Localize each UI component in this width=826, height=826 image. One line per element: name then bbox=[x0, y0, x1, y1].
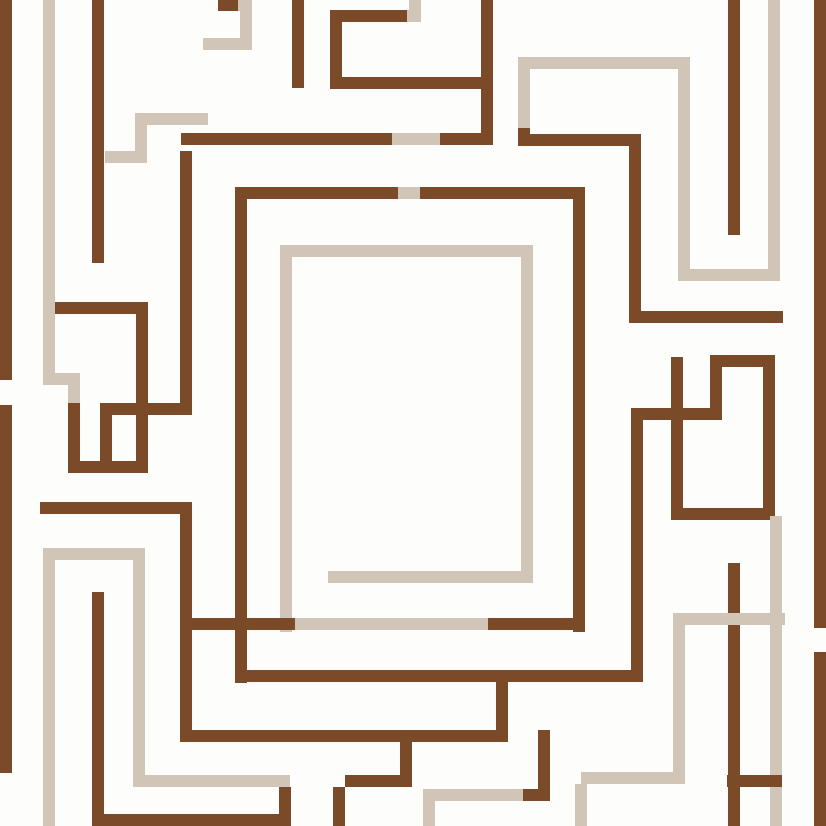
maze-segment-brown bbox=[814, 0, 826, 628]
maze-segment-brown bbox=[481, 0, 493, 145]
maze-segment-beige bbox=[68, 385, 80, 403]
maze-segment-brown bbox=[671, 357, 683, 520]
maze-segment-brown bbox=[629, 311, 783, 323]
maze-segment-brown bbox=[100, 403, 112, 473]
maze-segment-brown bbox=[292, 0, 304, 88]
maze-segment-beige bbox=[392, 133, 440, 145]
maze-segment-beige bbox=[43, 548, 145, 560]
maze-segment-beige bbox=[423, 789, 523, 801]
maze-segment-beige bbox=[141, 113, 208, 125]
maze-segment-brown bbox=[40, 502, 192, 514]
maze-segment-beige bbox=[328, 571, 533, 583]
maze-segment-beige bbox=[240, 11, 252, 50]
maze-segment-brown bbox=[538, 730, 550, 801]
maze-segment-brown bbox=[0, 405, 12, 773]
maze-segment-beige bbox=[295, 618, 488, 630]
maze-segment-brown bbox=[763, 355, 775, 520]
maze-segment-brown bbox=[488, 618, 585, 630]
maze-segment-beige bbox=[690, 269, 780, 281]
maze-segment-brown bbox=[518, 128, 530, 146]
maze-segment-brown bbox=[710, 367, 722, 420]
maze-segment-brown bbox=[136, 308, 148, 473]
maze-segment-brown bbox=[727, 775, 782, 787]
maze-segment-beige bbox=[133, 560, 145, 787]
maze-segment-brown bbox=[333, 787, 345, 826]
maze-segment-brown bbox=[573, 187, 585, 632]
maze-segment-beige bbox=[423, 801, 435, 826]
maze-segment-beige bbox=[280, 245, 533, 257]
maze-segment-beige bbox=[581, 772, 685, 784]
maze-artwork bbox=[0, 0, 826, 826]
maze-segment-beige bbox=[43, 548, 55, 826]
maze-segment-brown bbox=[530, 134, 641, 146]
maze-segment-beige bbox=[409, 0, 421, 10]
maze-segment-brown bbox=[192, 618, 295, 630]
maze-segment-brown bbox=[629, 145, 641, 323]
maze-segment-brown bbox=[180, 514, 192, 742]
maze-segment-brown bbox=[92, 0, 104, 263]
maze-segment-brown bbox=[400, 742, 412, 787]
maze-segment-beige bbox=[238, 0, 252, 11]
maze-segment-brown bbox=[235, 187, 398, 199]
maze-segment-brown bbox=[92, 592, 104, 826]
maze-segment-beige bbox=[43, 0, 55, 373]
maze-segment-brown bbox=[103, 814, 291, 826]
maze-segment-beige bbox=[145, 775, 290, 787]
maze-segment-brown bbox=[420, 187, 585, 199]
maze-segment-beige bbox=[407, 10, 421, 22]
maze-segment-beige bbox=[43, 373, 80, 385]
maze-segment-beige bbox=[518, 57, 690, 69]
maze-segment-brown bbox=[55, 302, 148, 314]
maze-segment-brown bbox=[330, 10, 407, 22]
maze-segment-brown bbox=[0, 0, 12, 380]
maze-segment-brown bbox=[181, 133, 392, 145]
maze-segment-beige bbox=[398, 187, 420, 199]
maze-segment-brown bbox=[631, 408, 643, 682]
maze-segment-brown bbox=[235, 187, 247, 683]
maze-segment-brown bbox=[192, 730, 508, 742]
maze-segment-beige bbox=[678, 69, 690, 281]
maze-segment-beige bbox=[673, 625, 685, 784]
maze-segment-brown bbox=[683, 508, 775, 520]
maze-segment-beige bbox=[521, 257, 533, 583]
maze-segment-brown bbox=[728, 0, 740, 235]
maze-segment-beige bbox=[203, 38, 240, 50]
maze-segment-beige bbox=[673, 613, 785, 625]
maze-segment-brown bbox=[100, 403, 192, 415]
maze-segment-beige bbox=[280, 245, 292, 632]
maze-segment-beige bbox=[768, 0, 780, 281]
maze-segment-brown bbox=[814, 652, 826, 826]
maze-segment-beige bbox=[575, 784, 587, 826]
maze-segment-brown bbox=[180, 151, 192, 415]
maze-segment-brown bbox=[218, 0, 238, 11]
maze-segment-brown bbox=[235, 670, 643, 682]
maze-segment-beige bbox=[105, 151, 147, 163]
maze-segment-brown bbox=[496, 682, 508, 742]
maze-canvas bbox=[0, 0, 826, 826]
maze-segment-brown bbox=[330, 77, 493, 89]
